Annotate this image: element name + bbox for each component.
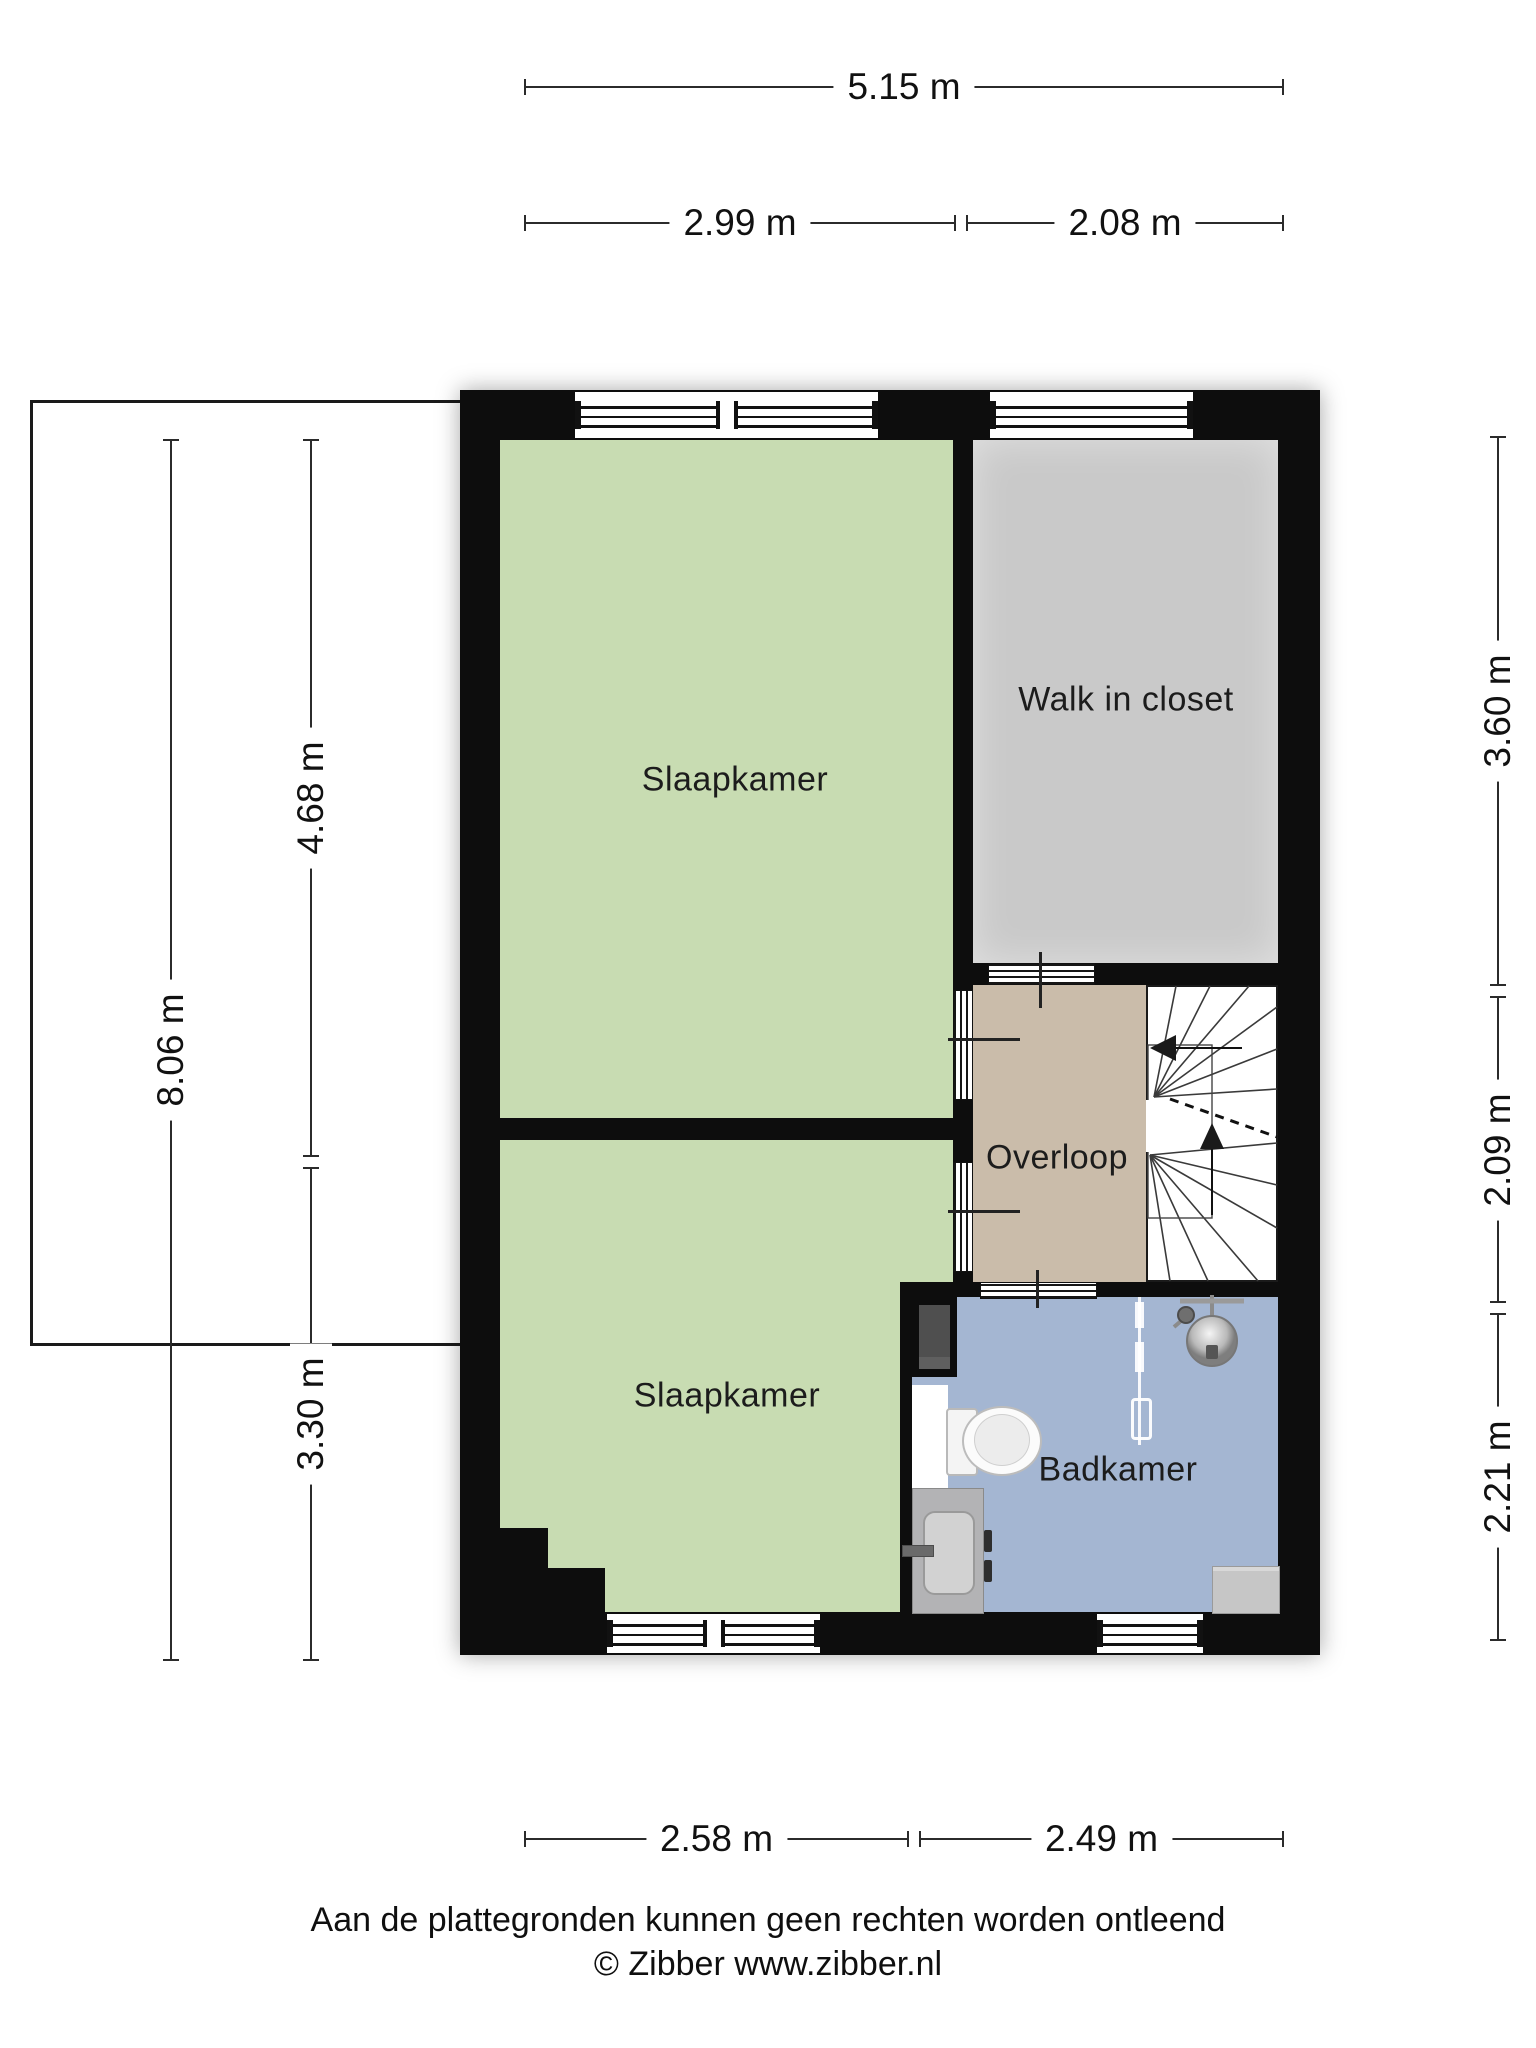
dimension-right-middle: 2.09 m (1497, 997, 1499, 1302)
door-tick-closet (1039, 952, 1042, 1008)
window-frame-cap (1187, 401, 1193, 429)
wall-notch-upper (500, 1528, 548, 1568)
cabinet-handle (984, 1560, 992, 1582)
shower-glass-hinge (1135, 1342, 1144, 1372)
dimension-left-total: 8.06 m (170, 440, 172, 1660)
footer: Aan de plattegronden kunnen geen rechten… (0, 1898, 1536, 1986)
window-glazing (996, 406, 1187, 428)
footer-disclaimer: Aan de plattegronden kunnen geen rechten… (0, 1898, 1536, 1942)
door-tick-slaapkamer-top (948, 1038, 1020, 1041)
shower-glass-handle (1131, 1398, 1152, 1440)
dimension-top-left: 2.99 m (525, 222, 955, 224)
window-slaapkamer-top (575, 392, 878, 438)
room-slaapkamer-bottom (500, 1282, 900, 1612)
window-frame-cap (607, 1620, 613, 1647)
window-frame-cap (1097, 1620, 1103, 1647)
stairs (1146, 985, 1278, 1282)
label-slaapkamer-top: Slaapkamer (642, 761, 828, 800)
radiator (1212, 1566, 1280, 1614)
shower-glass-hinge (1135, 1302, 1144, 1328)
wall-between-slaapkamers (500, 1118, 973, 1140)
dimension-top-total: 5.15 m (525, 86, 1283, 88)
dimension-bottom-right: 2.49 m (920, 1838, 1283, 1840)
room-overloop (973, 985, 1146, 1282)
wall-slaapkamer-badkamer (900, 1282, 912, 1612)
window-walk-in-closet (990, 392, 1193, 438)
label-overloop: Overloop (986, 1139, 1128, 1178)
window-glazing (1103, 1624, 1197, 1646)
label-walk-in-closet: Walk in closet (1018, 681, 1233, 720)
floorplan-page: Slaapkamer Walk in closet Overloop Slaap… (0, 0, 1536, 2048)
window-frame-cap (872, 401, 878, 429)
label-slaapkamer-bottom: Slaapkamer (634, 1377, 820, 1416)
dimension-bottom-left: 2.58 m (525, 1838, 908, 1840)
footer-copyright: © Zibber www.zibber.nl (0, 1942, 1536, 1986)
window-frame-cap (990, 401, 996, 429)
faucet-icon (902, 1545, 934, 1557)
window-slaapkamer-bottom (607, 1614, 820, 1653)
door-tick-slaapkamer-bottom (948, 1210, 1020, 1213)
dimension-right-upper: 3.60 m (1497, 437, 1499, 985)
window-mullion (703, 1620, 725, 1647)
window-mullion (716, 401, 738, 429)
door-tick-badkamer (1036, 1270, 1039, 1308)
dimension-left-upper: 4.68 m (310, 440, 312, 1156)
shaft (912, 1297, 957, 1377)
window-badkamer (1097, 1614, 1203, 1653)
window-frame-cap (1197, 1620, 1203, 1647)
dimension-top-right: 2.08 m (967, 222, 1283, 224)
annex-outline (30, 400, 506, 1346)
window-frame-cap (575, 401, 581, 429)
label-badkamer: Badkamer (1039, 1451, 1198, 1490)
door-slaapkamer-top (953, 990, 973, 1100)
wall-slaapkamer-closet (953, 440, 973, 963)
window-frame-cap (814, 1620, 820, 1647)
toilet-seat (974, 1414, 1030, 1466)
toilet-niche (912, 1385, 948, 1488)
room-slaapkamer-bottom-upper (500, 1140, 953, 1282)
cabinet-handle (984, 1530, 992, 1552)
dimension-left-lower: 3.30 m (310, 1168, 312, 1660)
wall-notch-lower (500, 1568, 605, 1612)
door-slaapkamer-bottom (953, 1162, 973, 1272)
dimension-right-lower: 2.21 m (1497, 1314, 1499, 1640)
shower-head-icon (1160, 1293, 1250, 1373)
